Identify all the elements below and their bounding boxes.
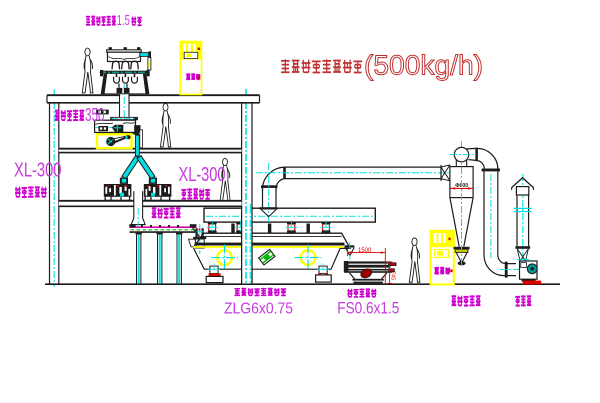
svg-text:(500kg/h): (500kg/h) bbox=[364, 50, 483, 81]
svg-text:ZLG6x0.75: ZLG6x0.75 bbox=[224, 300, 293, 317]
svg-text:FS0.6x1.5: FS0.6x1.5 bbox=[337, 300, 399, 318]
svg-text:745: 745 bbox=[390, 271, 396, 280]
svg-text:1500: 1500 bbox=[358, 248, 372, 254]
svg-text:XL-300: XL-300 bbox=[14, 158, 62, 181]
svg-text:1.5: 1.5 bbox=[117, 12, 130, 29]
svg-text:XL-300: XL-300 bbox=[179, 164, 226, 186]
svg-text:350: 350 bbox=[85, 105, 105, 125]
